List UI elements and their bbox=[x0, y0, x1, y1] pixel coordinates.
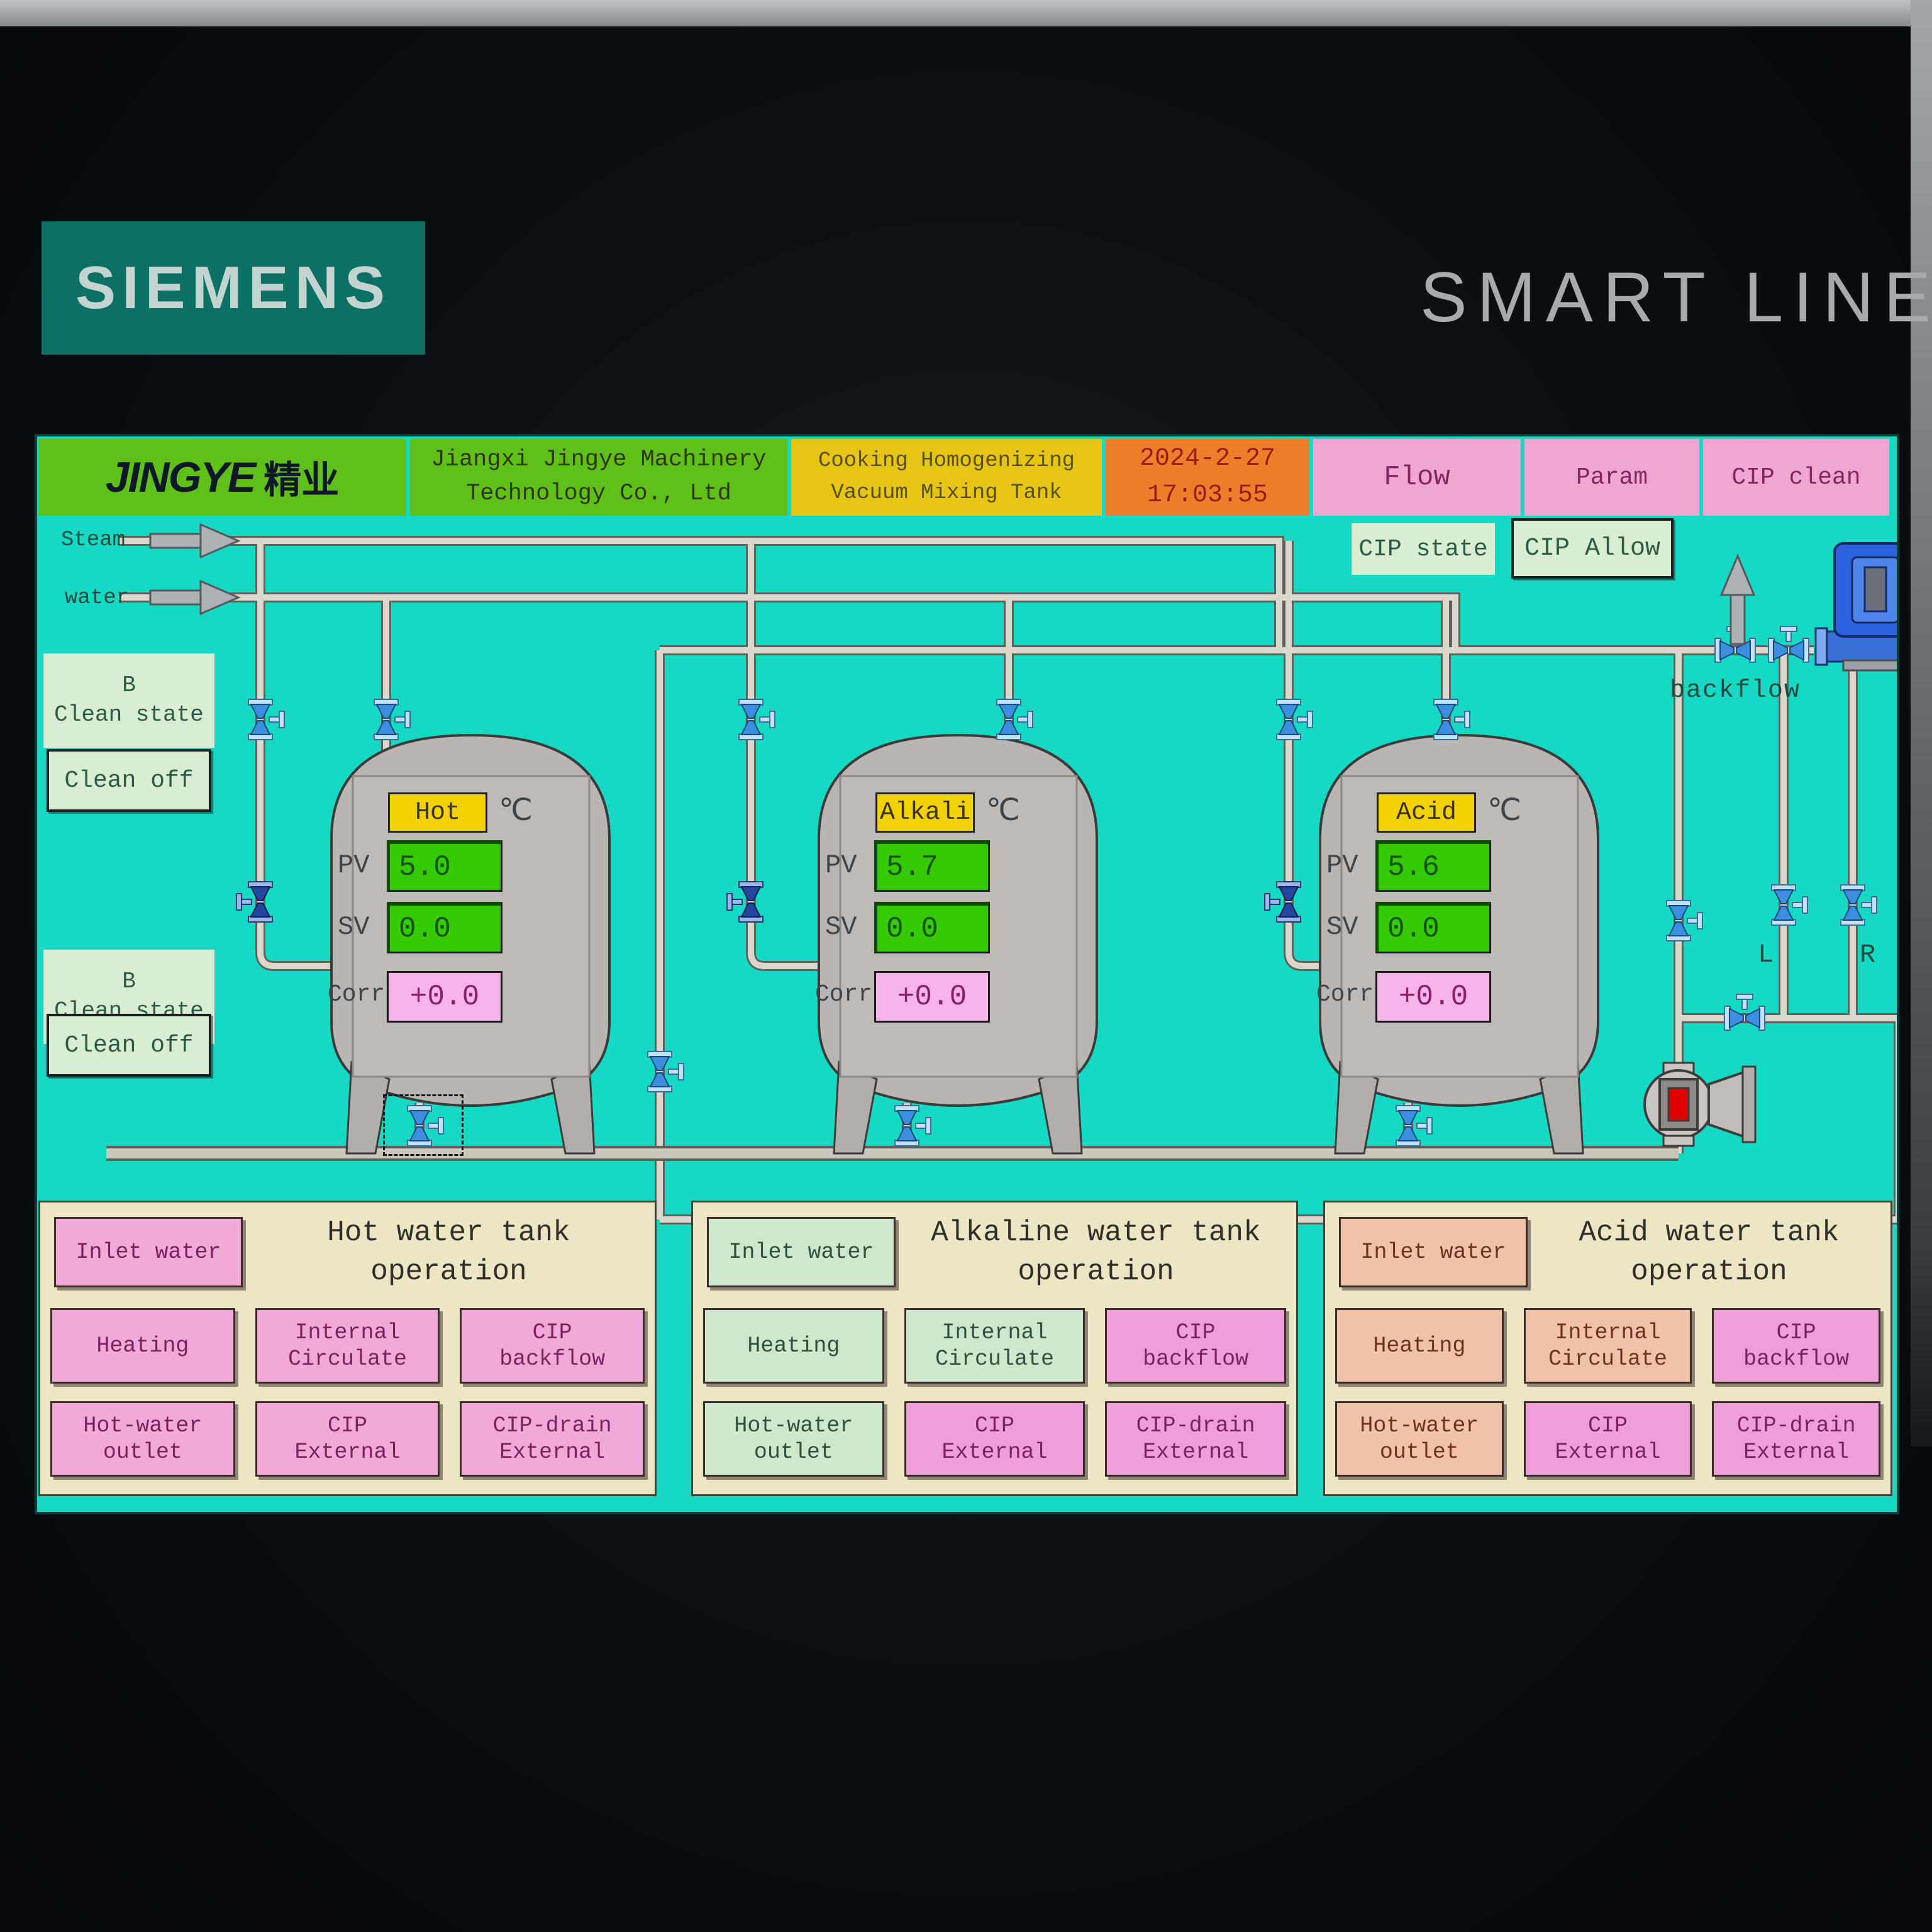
tank-hot-corr-field[interactable]: +0.0 bbox=[387, 971, 502, 1023]
tank-hot-name-field[interactable]: Hot bbox=[388, 792, 487, 833]
acid-cip-backflow-button[interactable]: CIPbackflow bbox=[1712, 1308, 1880, 1384]
hot-cip-backflow-button[interactable]: CIPbackflow bbox=[460, 1308, 645, 1384]
acid-inlet-water-button[interactable]: Inlet water bbox=[1339, 1217, 1528, 1287]
screen-title-line2: Vacuum Mixing Tank bbox=[831, 477, 1062, 509]
date-value: 2024-2-27 bbox=[1140, 441, 1275, 477]
tank-acid-corr-field[interactable]: +0.0 bbox=[1375, 971, 1491, 1023]
tank-hot: Hot ℃ PV 5.0 SV 0.0 Corr +0.0 bbox=[325, 732, 616, 1166]
nav-param-button[interactable]: Param bbox=[1524, 439, 1699, 516]
alkaline-heating-button[interactable]: Heating bbox=[703, 1308, 884, 1384]
backflow-arrow-icon bbox=[1721, 556, 1754, 644]
backflow-label: backflow bbox=[1670, 677, 1801, 705]
tank-alkali-name-field[interactable]: Alkali bbox=[875, 792, 975, 833]
clean-off-button-2[interactable]: Clean off bbox=[47, 1014, 211, 1077]
right-pipe-label: R bbox=[1860, 940, 1875, 970]
company-name-line2: Technology Co., Ltd bbox=[466, 477, 731, 511]
time-value: 17:03:55 bbox=[1147, 477, 1268, 514]
alkaline-cip-backflow-button[interactable]: CIPbackflow bbox=[1105, 1308, 1286, 1384]
nav-flow-button[interactable]: Flow bbox=[1313, 439, 1521, 516]
tank-alkali-unit: ℃ bbox=[986, 792, 1020, 830]
smartline-label: SMART LINE bbox=[1420, 257, 1932, 338]
hot-cip-drain-external-button[interactable]: CIP-drainExternal bbox=[460, 1401, 645, 1477]
vendor-logo: JINGYE 精业 bbox=[38, 439, 406, 516]
hmi-screen: JINGYE 精业 Jiangxi Jingye Machinery Techn… bbox=[35, 434, 1899, 1514]
acid-heating-button[interactable]: Heating bbox=[1335, 1308, 1504, 1384]
cip-allow-button[interactable]: CIP Allow bbox=[1511, 518, 1674, 579]
alkaline-hot-water-outlet-button[interactable]: Hot-wateroutlet bbox=[703, 1401, 884, 1477]
panel-acid-title: Acid water tankoperation bbox=[1528, 1213, 1890, 1291]
cip-state-label: CIP state bbox=[1352, 523, 1495, 575]
panel-alkaline-water-tank: Inlet water Alkaline water tankoperation… bbox=[691, 1201, 1298, 1496]
panel-hot-water-tank: Inlet water Hot water tankoperation Heat… bbox=[38, 1201, 657, 1496]
panel-alkaline-title: Alkaline water tankoperation bbox=[896, 1213, 1296, 1291]
wall-strip bbox=[0, 0, 1932, 26]
company-name: Jiangxi Jingye Machinery Technology Co.,… bbox=[410, 439, 787, 516]
tank-alkali: Alkali ℃ PV 5.7 SV 0.0 Corr +0.0 bbox=[813, 732, 1103, 1166]
alkaline-cip-external-button[interactable]: CIPExternal bbox=[904, 1401, 1085, 1477]
alkaline-inlet-water-button[interactable]: Inlet water bbox=[707, 1217, 896, 1287]
tank-hot-pv-field[interactable]: 5.0 bbox=[387, 840, 502, 892]
vendor-logo-cn: 精业 bbox=[264, 450, 339, 505]
acid-internal-circulate-button[interactable]: InternalCirculate bbox=[1524, 1308, 1692, 1384]
tank-acid-pv-field[interactable]: 5.6 bbox=[1375, 840, 1491, 892]
backflow-pump-icon bbox=[1816, 543, 1897, 670]
tank-hot-unit: ℃ bbox=[499, 792, 533, 830]
panel-hot-title: Hot water tankoperation bbox=[243, 1213, 655, 1291]
water-label: water bbox=[65, 586, 129, 610]
tank-acid-name-field[interactable]: Acid bbox=[1377, 792, 1476, 833]
nav-cip-clean-button[interactable]: CIP clean bbox=[1703, 439, 1889, 516]
tank-acid-unit: ℃ bbox=[1487, 792, 1521, 830]
alkaline-internal-circulate-button[interactable]: InternalCirculate bbox=[904, 1308, 1085, 1384]
tank-acid-sv-field[interactable]: 0.0 bbox=[1375, 902, 1491, 953]
hot-heating-button[interactable]: Heating bbox=[50, 1308, 235, 1384]
datetime-display: 2024-2-27 17:03:55 bbox=[1106, 439, 1309, 516]
screen-title-line1: Cooking Homogenizing bbox=[818, 445, 1075, 477]
siemens-logo-text: SIEMENS bbox=[75, 253, 391, 323]
wall-strip-right bbox=[1911, 0, 1932, 1446]
tank-hot-sv-field[interactable]: 0.0 bbox=[387, 902, 502, 953]
alkaline-cip-drain-external-button[interactable]: CIP-drainExternal bbox=[1105, 1401, 1286, 1477]
hot-inlet-water-button[interactable]: Inlet water bbox=[54, 1217, 243, 1287]
acid-hot-water-outlet-button[interactable]: Hot-wateroutlet bbox=[1335, 1401, 1504, 1477]
tank-alkali-corr-field[interactable]: +0.0 bbox=[874, 971, 990, 1023]
vendor-logo-en: JINGYE bbox=[106, 453, 255, 502]
cip-pump-icon bbox=[1645, 1063, 1755, 1146]
tank-acid: Acid ℃ PV 5.6 SV 0.0 Corr +0.0 bbox=[1314, 732, 1604, 1166]
water-arrow-icon bbox=[150, 581, 238, 614]
b-clean-state-label-1: B Clean state bbox=[43, 653, 214, 748]
hot-cip-external-button[interactable]: CIPExternal bbox=[255, 1401, 440, 1477]
steam-arrow-icon bbox=[150, 525, 238, 557]
steam-label: Steam bbox=[61, 528, 125, 552]
hot-internal-circulate-button[interactable]: InternalCirculate bbox=[255, 1308, 440, 1384]
tank-alkali-sv-field[interactable]: 0.0 bbox=[874, 902, 990, 953]
tank-alkali-pv-field[interactable]: 5.7 bbox=[874, 840, 990, 892]
company-name-line1: Jiangxi Jingye Machinery bbox=[431, 443, 767, 477]
siemens-logo: SIEMENS bbox=[42, 221, 425, 355]
left-pipe-label: L bbox=[1758, 940, 1774, 970]
acid-cip-external-button[interactable]: CIPExternal bbox=[1524, 1401, 1692, 1477]
screen-title: Cooking Homogenizing Vacuum Mixing Tank bbox=[791, 439, 1102, 516]
clean-off-button-1[interactable]: Clean off bbox=[47, 749, 211, 812]
acid-cip-drain-external-button[interactable]: CIP-drainExternal bbox=[1712, 1401, 1880, 1477]
hmi-panel-photo: SIEMENS SMART LINE bbox=[0, 0, 1932, 1932]
hot-hot-water-outlet-button[interactable]: Hot-wateroutlet bbox=[50, 1401, 235, 1477]
panel-acid-water-tank: Inlet water Acid water tankoperation Hea… bbox=[1323, 1201, 1892, 1496]
